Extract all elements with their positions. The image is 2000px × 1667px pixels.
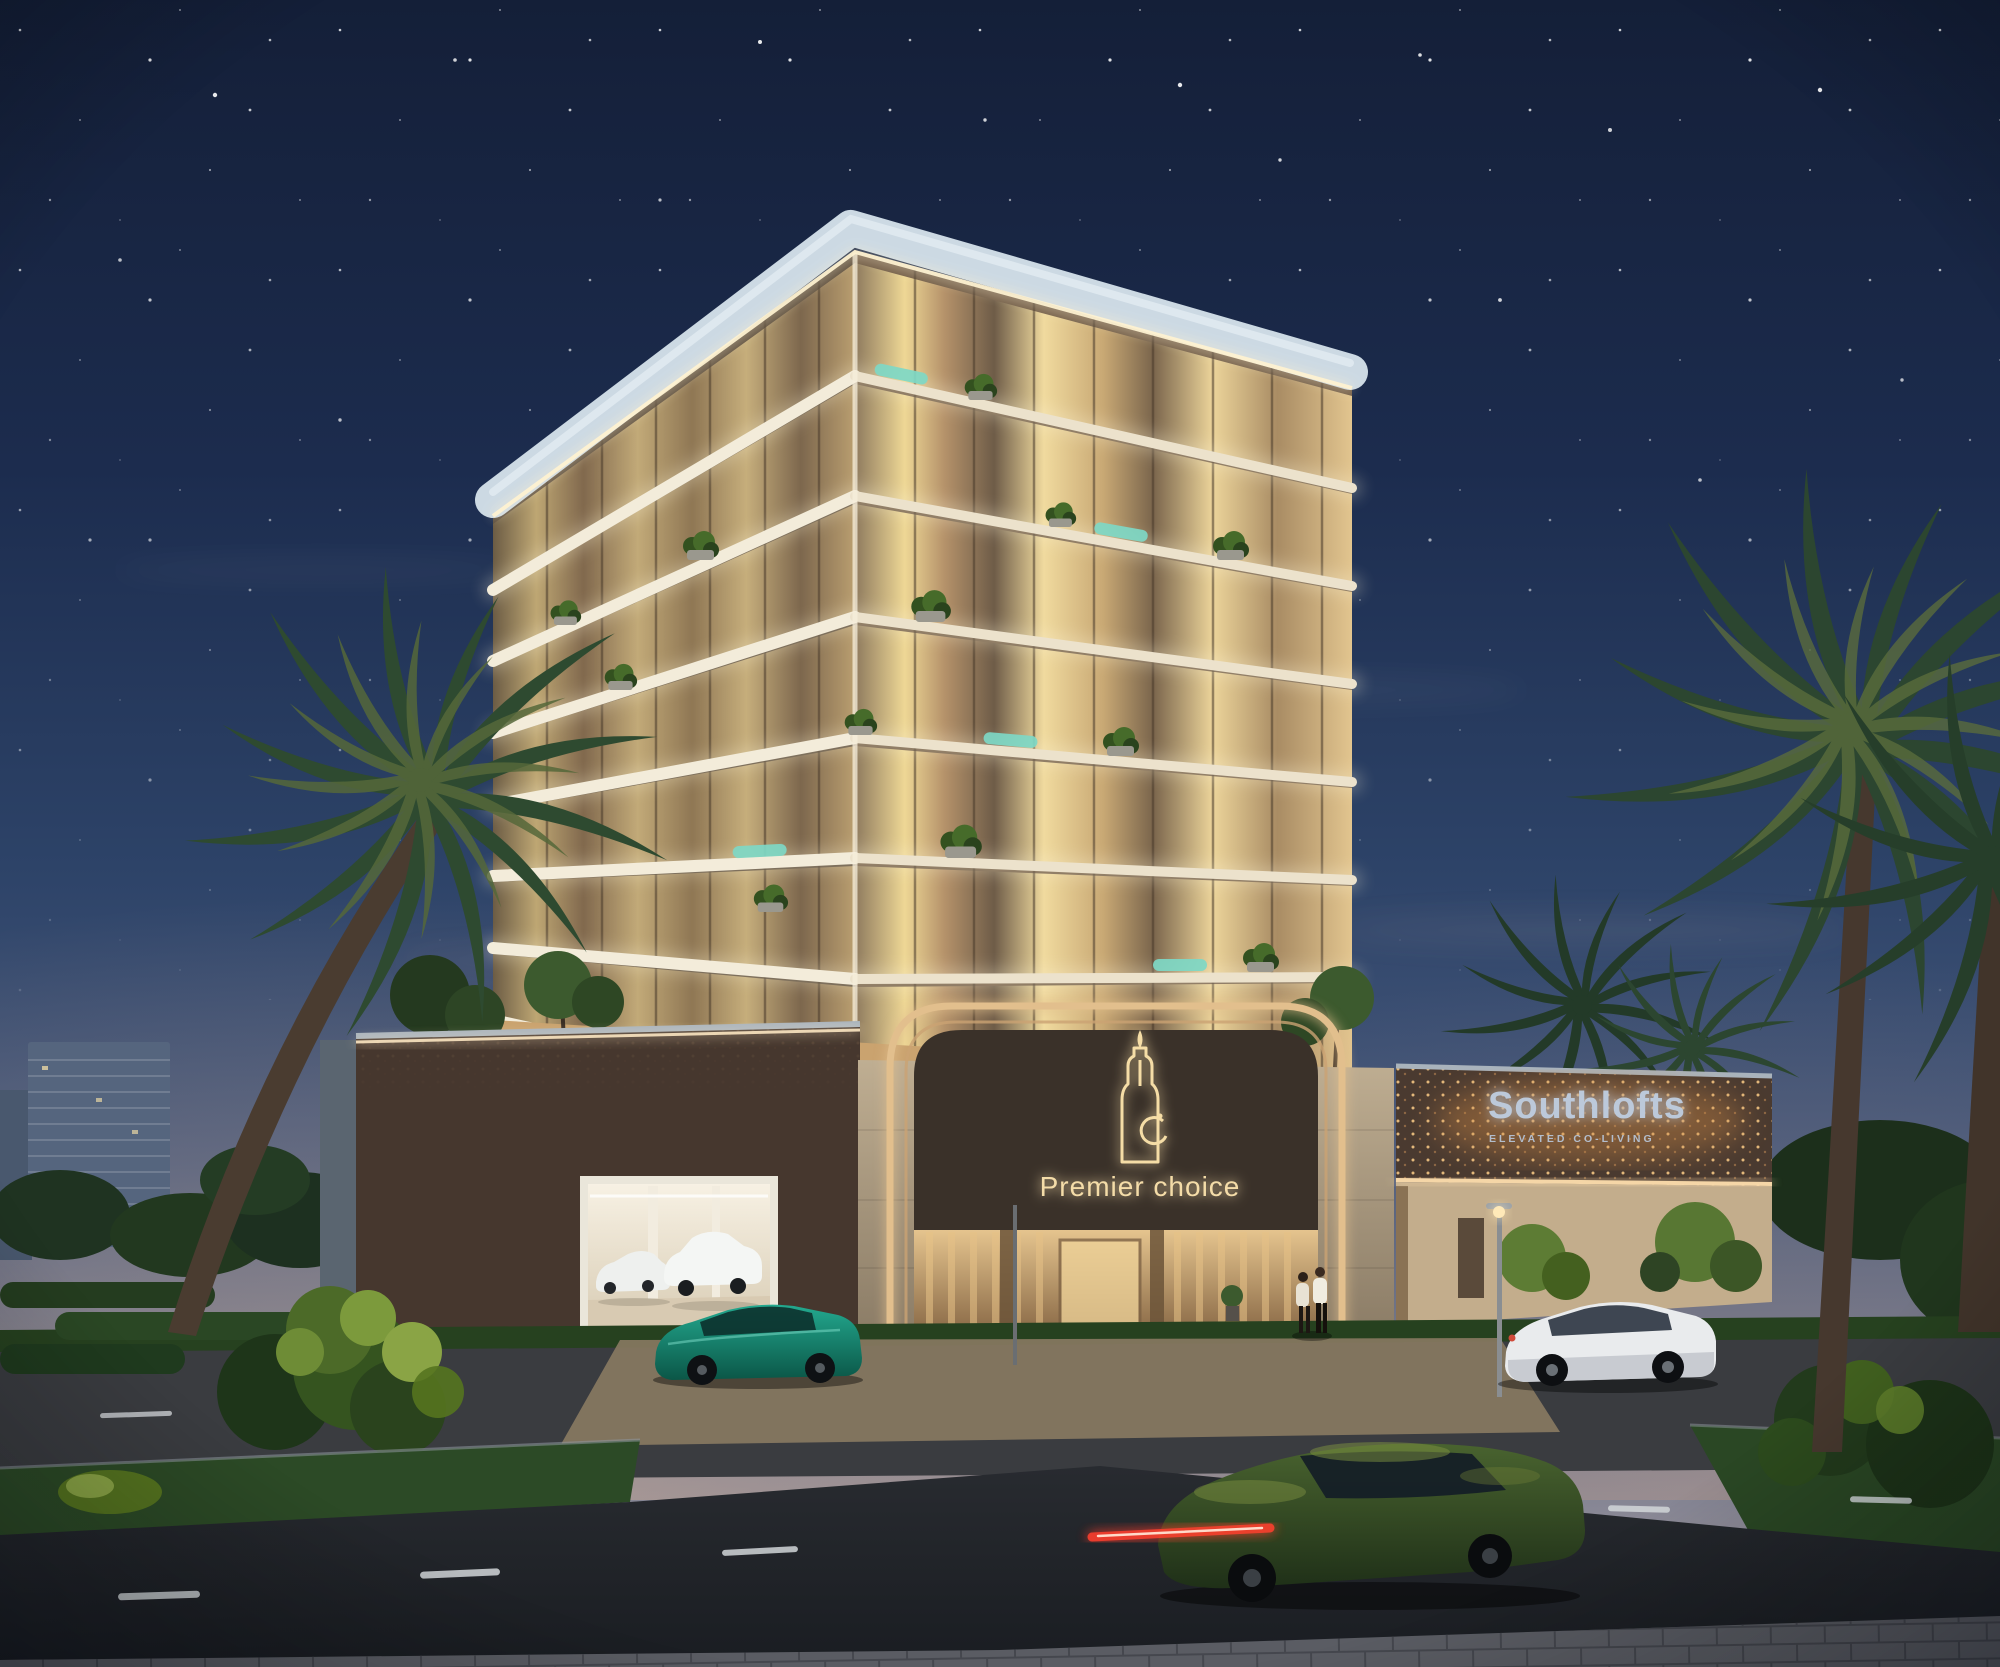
architectural-render: Premier choice Southlofts ELEVATED CO-LI… <box>0 0 2000 1667</box>
vignette <box>0 0 2000 1667</box>
